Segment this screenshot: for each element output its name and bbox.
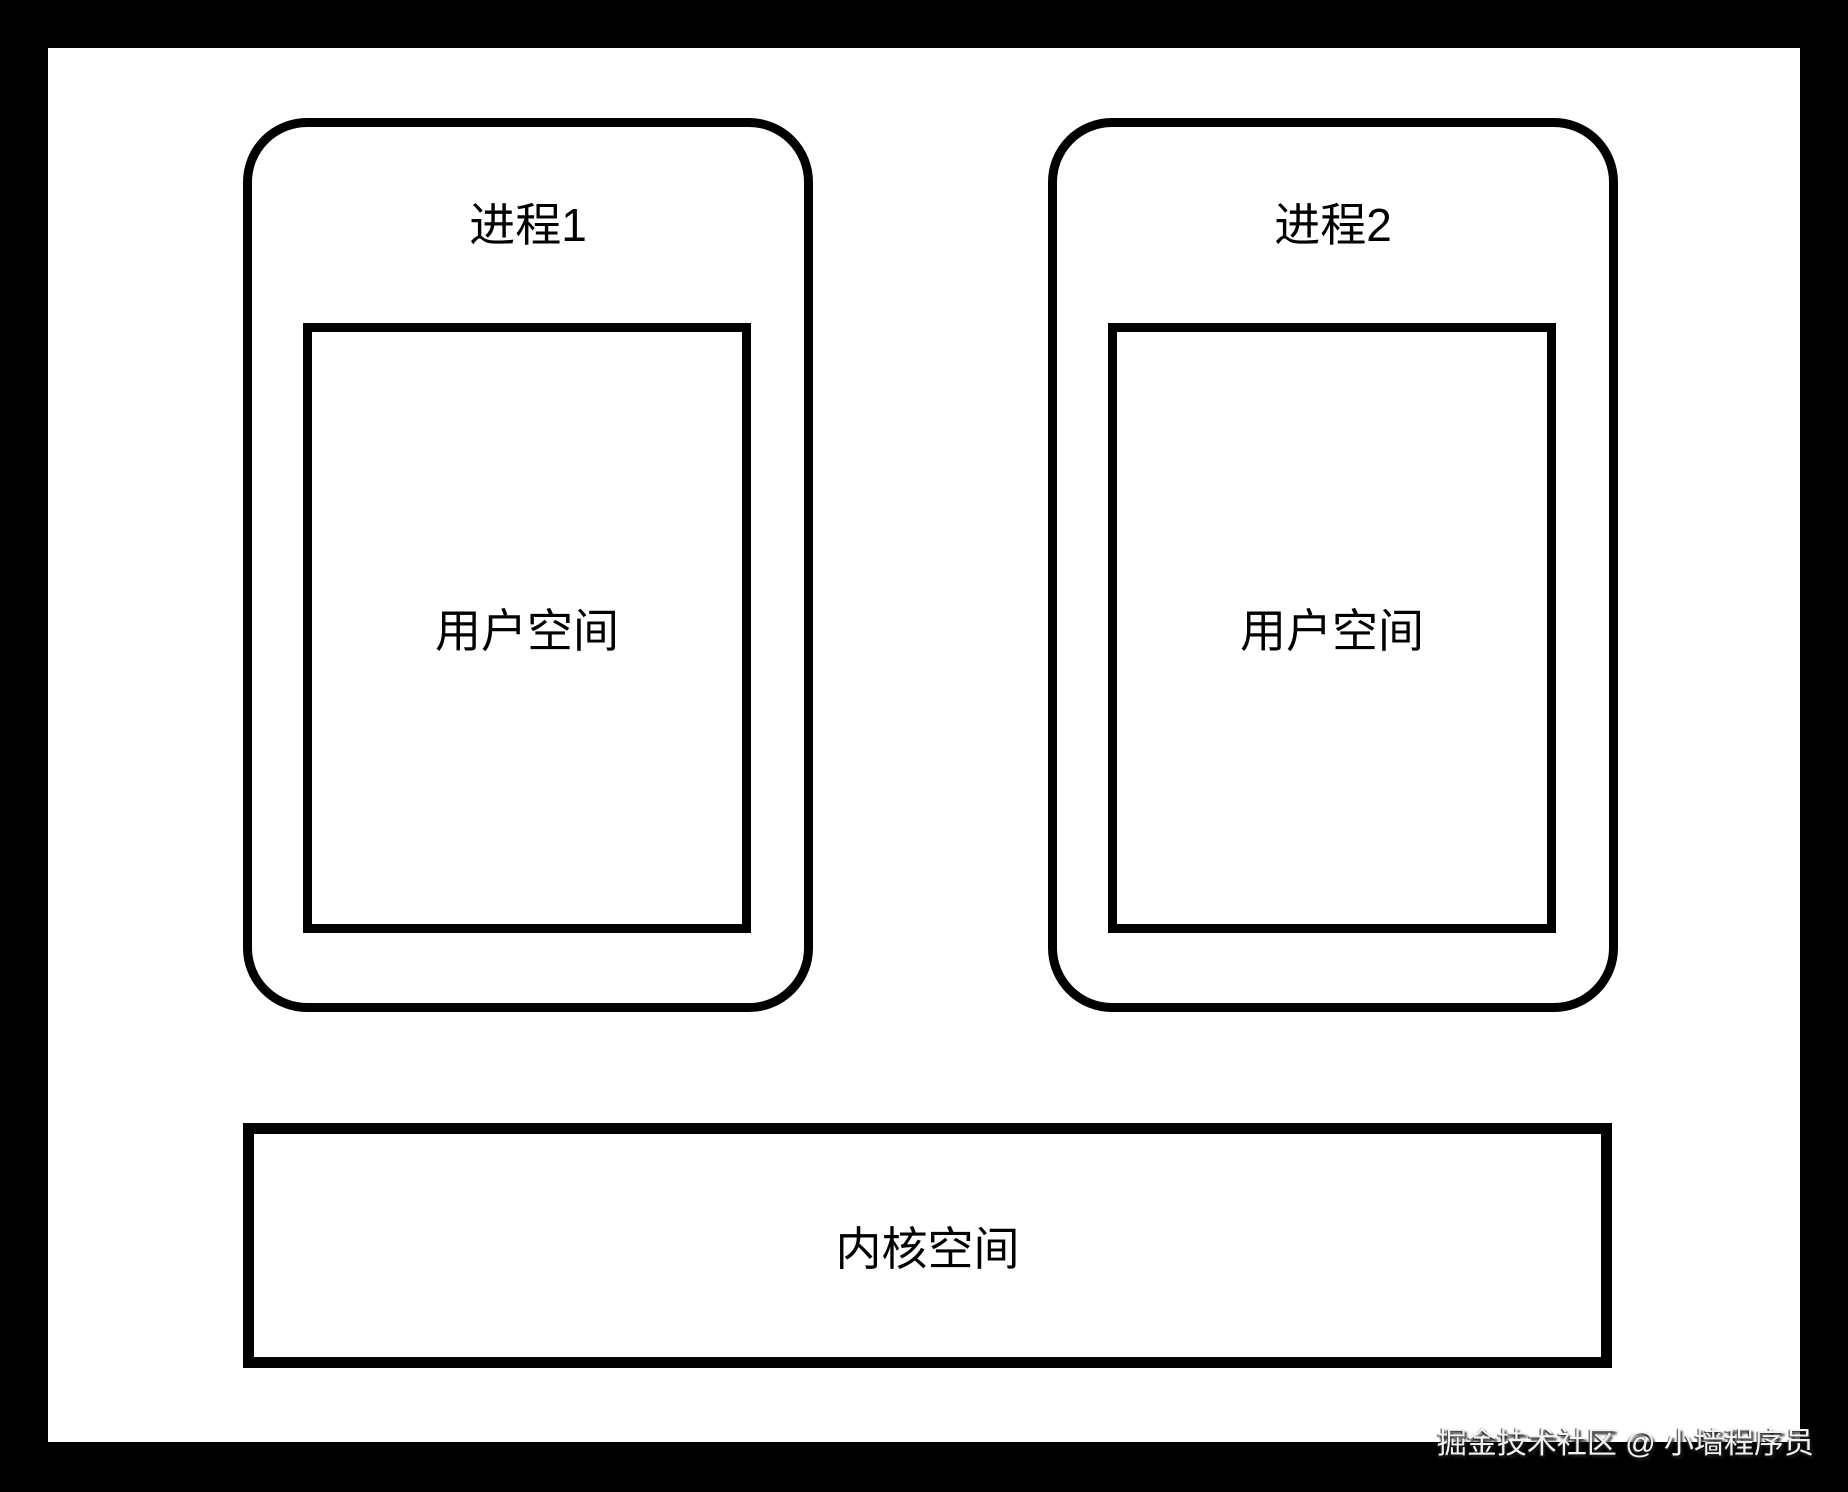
- process-2-user-space-box: 用户空间: [1108, 323, 1556, 933]
- diagram-canvas: 进程1 用户空间 进程2 用户空间 内核空间: [48, 48, 1800, 1442]
- page-frame: 进程1 用户空间 进程2 用户空间 内核空间 掘金技术社区 @ 小墙程序员: [0, 0, 1848, 1492]
- process-1-user-space-box: 用户空间: [303, 323, 751, 933]
- process-2-title: 进程2: [1057, 200, 1609, 250]
- process-1-box: 进程1 用户空间: [243, 118, 813, 1012]
- process-2-user-space-label: 用户空间: [1240, 595, 1424, 661]
- process-2-box: 进程2 用户空间: [1048, 118, 1618, 1012]
- kernel-space-label: 内核空间: [836, 1213, 1020, 1279]
- process-1-user-space-label: 用户空间: [435, 595, 619, 661]
- kernel-space-box: 内核空间: [243, 1123, 1612, 1368]
- watermark-text: 掘金技术社区 @ 小墙程序员: [1437, 1418, 1814, 1462]
- process-1-title: 进程1: [252, 200, 804, 250]
